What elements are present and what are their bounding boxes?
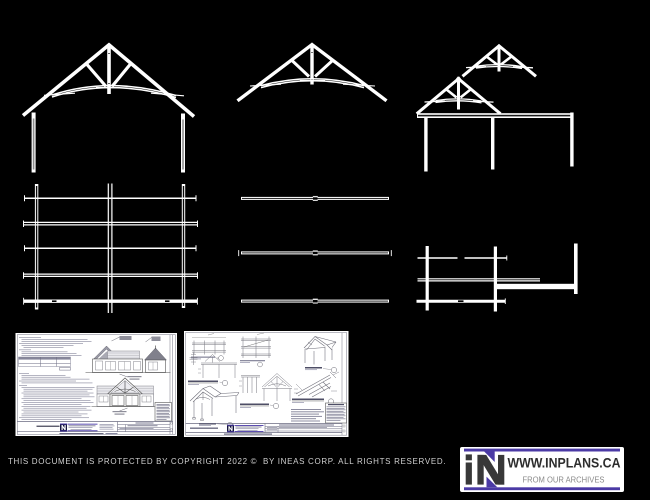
svg-text:FROM OUR ARCHIVES: FROM OUR ARCHIVES: [523, 475, 605, 484]
svg-text:WWW.INPLANS.CA: WWW.INPLANS.CA: [508, 455, 621, 471]
